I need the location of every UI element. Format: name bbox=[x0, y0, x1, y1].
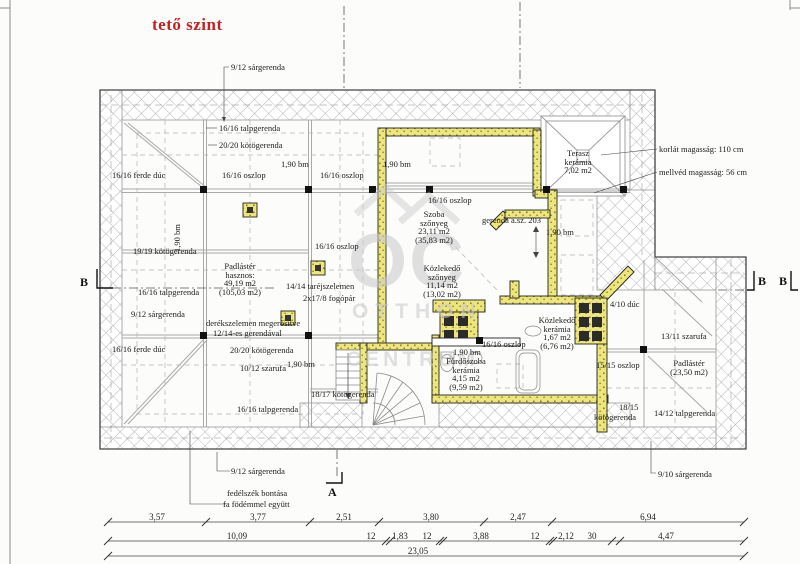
plan-annotation: fedélszék bontása bbox=[227, 489, 287, 498]
dimension-value: 30 bbox=[570, 531, 614, 541]
floor-plan-page: tető szint OC OTTHON CENTRUM B B B A 9/1… bbox=[0, 0, 800, 564]
dimension-value: 2,51 bbox=[322, 512, 366, 522]
plan-annotation: 9/12 sárgerenda bbox=[131, 310, 185, 319]
page-title: tető szint bbox=[152, 15, 223, 35]
room-label-furdoszoba: Fürdőszoba kerámia 4,15 m2 (9,59 m2) bbox=[421, 357, 511, 391]
dimension-total: 23,05 bbox=[396, 546, 440, 556]
plan-annotation: 18/17 kötögerenda bbox=[311, 390, 375, 399]
plan-annotation: 2x17/8 fogópár bbox=[303, 294, 355, 303]
room-label-line: (105,03 m2) bbox=[195, 288, 285, 297]
plan-annotation: 16/16 ferde dúc bbox=[112, 171, 165, 180]
room-label-line: (6,76 m2) bbox=[521, 342, 593, 351]
section-marker-b-right: B B bbox=[758, 274, 792, 289]
room-label-line: (13,02 m2) bbox=[397, 290, 487, 299]
plan-annotation: 9/12 sárgerenda bbox=[231, 63, 285, 72]
section-marker-b-left: B bbox=[80, 275, 88, 290]
plan-annotation: 14/12 talpgerenda bbox=[654, 409, 715, 418]
plan-annotation: 12/14-es gerendával bbox=[213, 329, 282, 338]
room-label-line: 7,02 m2 bbox=[549, 166, 607, 175]
plan-annotation: 1,90 bm bbox=[281, 160, 309, 169]
room-label-szoba: Szoba szőnyeg 23,11 m2 (35,83 m2) bbox=[389, 210, 479, 244]
plan-annotation: 16/16 talpgerenda bbox=[219, 124, 280, 133]
dimension-value: 3,57 bbox=[135, 512, 179, 522]
dimension-value: 12 bbox=[405, 531, 449, 541]
room-label-padlaster-small: Padlástér (23,50 m2) bbox=[654, 359, 724, 376]
plan-annotation: 16/16 talpgerenda bbox=[138, 288, 199, 297]
plan-annotation: derékszelemen megerősítve bbox=[206, 319, 300, 328]
plan-annotation: 14/14 taréjszelemen bbox=[286, 282, 354, 291]
plan-annotation: 16/16 talpgerenda bbox=[237, 405, 298, 414]
plan-annotation: 16/16 oszlop bbox=[222, 171, 266, 180]
room-label-line: (35,83 m2) bbox=[389, 236, 479, 245]
room-label-kozlekedo-szonyeg: Közlekedő szőnyeg 11,14 m2 (13,02 m2) bbox=[397, 264, 487, 298]
plan-annotation: 1,90 bm bbox=[287, 360, 315, 369]
plan-annotation: 10/12 szarufa bbox=[240, 364, 286, 373]
plan-annotation: 16/16 oszlop bbox=[320, 171, 364, 180]
plan-annotation: 4/10 dúc bbox=[610, 300, 640, 309]
watermark-line1: OTTHON bbox=[352, 300, 483, 324]
dimension-value: 6,94 bbox=[626, 512, 670, 522]
plan-annotation: korlát magasság: 110 cm bbox=[659, 145, 743, 154]
plan-annotation: 9/10 sárgerenda bbox=[658, 470, 712, 479]
plan-annotation: fa födémmel együtt bbox=[223, 500, 290, 509]
dimension-value: 3,88 bbox=[459, 531, 503, 541]
dimension-value: 3,80 bbox=[409, 512, 453, 522]
plan-annotation: 19/19 kötögerenda bbox=[133, 247, 197, 256]
dimension-value: 4,47 bbox=[644, 531, 688, 541]
dimension-value: 10,09 bbox=[215, 531, 259, 541]
plan-annotation: 16/16 ferde dúc bbox=[112, 345, 165, 354]
plan-annotation: 20/20 kötögerenda bbox=[219, 141, 283, 150]
plan-annotation: 9/12 sárgerenda bbox=[231, 467, 285, 476]
dimension-value: 3,77 bbox=[236, 512, 280, 522]
plan-annotation: 1,90 bm bbox=[546, 228, 574, 237]
plan-annotation: 16/16 oszlop bbox=[315, 242, 359, 251]
room-label-padlaster-main: Padlástér hasznos: 49,19 m2 (105,03 m2) bbox=[195, 262, 285, 296]
plan-annotation: 1,90 bm bbox=[383, 160, 411, 169]
room-label-kozlekedo-keramia: Közlekedő kerámia 1,67 m2 (6,76 m2) bbox=[521, 316, 593, 350]
room-label-terasz: Terasz kerámia 7,02 m2 bbox=[549, 149, 607, 175]
room-label-line: (23,50 m2) bbox=[654, 368, 724, 377]
plan-annotation: kötögerenda bbox=[594, 413, 636, 422]
plan-annotation: 16/16 oszlop bbox=[428, 196, 472, 205]
room-label-line: (9,59 m2) bbox=[421, 383, 511, 392]
dimension-value: 2,47 bbox=[496, 512, 540, 522]
plan-annotation: 13/11 szarufa bbox=[661, 332, 707, 341]
plan-annotation: gerenda a.sz. 203 bbox=[482, 216, 541, 225]
plan-annotation: 16/16 oszlop bbox=[482, 340, 526, 349]
section-marker-a: A bbox=[328, 485, 337, 500]
plan-annotation: 18/15 bbox=[619, 403, 638, 412]
plan-annotation: 15/15 oszlop bbox=[596, 361, 640, 370]
plan-annotation: mellvéd magasság: 56 cm bbox=[659, 168, 747, 177]
plan-annotation: 20/20 kötögerenda bbox=[230, 346, 294, 355]
